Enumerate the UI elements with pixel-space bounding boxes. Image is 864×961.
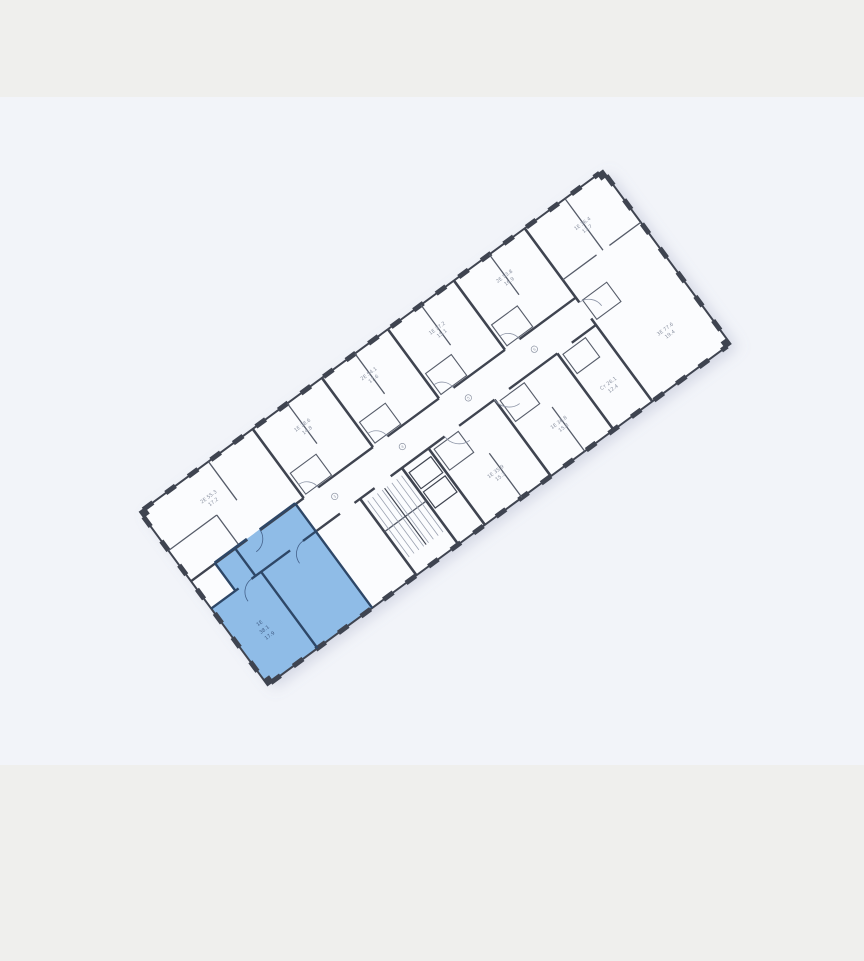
plan-image-area[interactable]: 1Е 38.1 17.9 2Е 55.3 17.2 1Е 38.6 14.8 xyxy=(0,97,864,765)
letterbox-bottom xyxy=(0,765,864,864)
building: 1Е 38.1 17.9 2Е 55.3 17.2 1Е 38.6 14.8 xyxy=(140,171,730,685)
floorplan-viewer: 1Е 38.1 17.9 2Е 55.3 17.2 1Е 38.6 14.8 xyxy=(0,0,864,864)
letterbox-top xyxy=(0,0,864,97)
